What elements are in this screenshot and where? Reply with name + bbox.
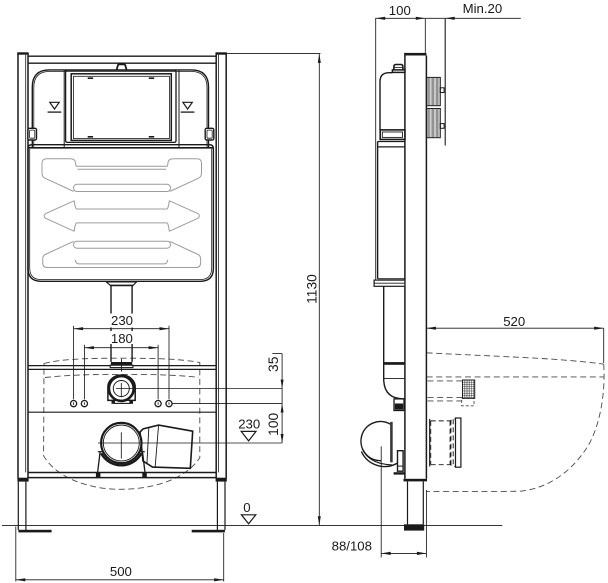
svg-text:100: 100: [266, 412, 281, 435]
svg-text:100: 100: [389, 3, 411, 18]
svg-text:520: 520: [503, 314, 525, 329]
svg-text:500: 500: [110, 564, 132, 579]
svg-text:230: 230: [111, 313, 133, 328]
svg-text:Min.20: Min.20: [463, 1, 503, 16]
svg-text:230: 230: [238, 416, 260, 431]
svg-text:35: 35: [266, 356, 281, 372]
svg-text:0: 0: [243, 500, 250, 515]
svg-text:180: 180: [111, 331, 133, 346]
svg-text:88/108: 88/108: [332, 538, 372, 553]
svg-text:1130: 1130: [304, 274, 319, 304]
